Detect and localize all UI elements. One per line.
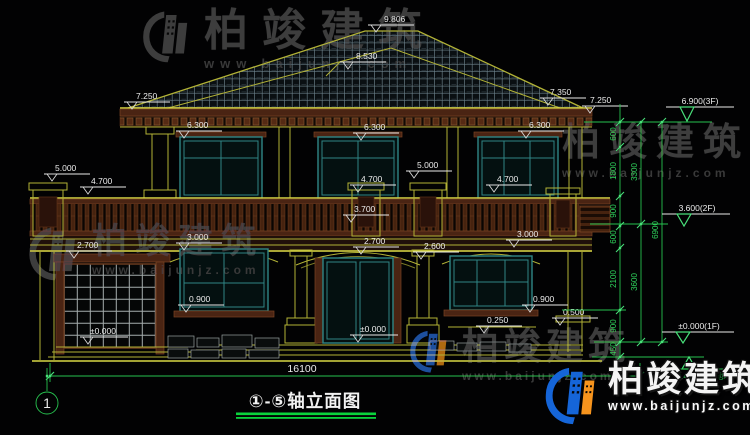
axis-bubble-1: 1 xyxy=(36,368,58,414)
axis-number: 1 xyxy=(43,395,51,411)
floor-level-flags: 6.900(3F) 3.600(2F) ±0.000(1F) -0.450(室外… xyxy=(662,96,742,381)
roof xyxy=(120,31,592,108)
window-2f-left xyxy=(176,132,266,199)
elev-label-balcony-floor: 3.700 xyxy=(354,204,376,214)
flag-3f: 6.900(3F) xyxy=(682,96,719,106)
elev-label-eave-right: 7.250 xyxy=(590,95,612,105)
dim-900a: 900 xyxy=(609,204,618,218)
elev-label-plinth-right: 0.500 xyxy=(563,307,585,317)
elev-label-arch-right: 2.600 xyxy=(424,241,446,251)
flag-1f: ±0.000(1F) xyxy=(678,321,720,331)
dim-2100: 2100 xyxy=(609,270,618,288)
dim-600b: 600 xyxy=(609,230,618,244)
elev-label-rail-mid: 4.700 xyxy=(361,174,383,184)
elev-label-rail-left: 4.700 xyxy=(91,176,113,186)
elev-label-winhead-right: 6.300 xyxy=(529,120,551,130)
elev-label-upper-hip: 8.530 xyxy=(356,51,378,61)
cad-viewport: 柏竣建筑 www.baijunjz.com 柏竣建筑 www.baijunjz.… xyxy=(0,0,750,435)
elev-label-sill-left: 0.900 xyxy=(189,294,211,304)
total-width-label: 16100 xyxy=(287,363,316,375)
window-2f-mid xyxy=(314,132,402,199)
elev-label-zero-left: ±0.000 xyxy=(90,326,116,336)
elevation-drawing: 9.806 8.530 7.250 7.350 7.250 6.300 6.30… xyxy=(0,0,750,435)
elev-label-sill-right: 0.900 xyxy=(533,294,555,304)
dim-6900: 6900 xyxy=(651,221,660,239)
elev-label-winhead-left: 6.300 xyxy=(187,120,209,130)
elev-label-arch-left: 2.700 xyxy=(77,240,99,250)
elev-label-pier-left: 5.000 xyxy=(55,163,77,173)
window-2f-right xyxy=(474,132,562,199)
elev-label-eave-left: 7.250 xyxy=(136,91,158,101)
balcony-railing xyxy=(30,198,610,252)
dim-3600: 3600 xyxy=(630,273,639,291)
elev-label-pier-right: 5.000 xyxy=(417,160,439,170)
elev-label-band-left: 3.000 xyxy=(187,232,209,242)
elev-label-zero-mid: ±0.000 xyxy=(360,324,386,334)
dim-450: 450 xyxy=(609,342,618,356)
flag-grade: -0.450(室外地坪) xyxy=(674,371,734,381)
chain-labels: 600 1800 900 600 2100 900 450 3300 3600 … xyxy=(609,127,660,356)
elev-label-ridge: 9.806 xyxy=(384,14,406,24)
drawing-title: ①-⑤轴立面图 xyxy=(236,391,376,419)
window-1f-left xyxy=(170,249,278,317)
elev-label-rail-right: 4.700 xyxy=(497,174,519,184)
bottom-dimension: 16100 xyxy=(46,363,644,382)
dim-3300: 3300 xyxy=(630,163,639,181)
elev-label-eave-right-upper: 7.350 xyxy=(550,87,572,97)
elev-label-band-right: 3.000 xyxy=(517,229,539,239)
title-text: ①-⑤轴立面图 xyxy=(249,391,361,411)
elev-label-arch-mid: 2.700 xyxy=(364,236,386,246)
flag-2f: 3.600(2F) xyxy=(679,203,716,213)
dim-1800: 1800 xyxy=(609,162,618,180)
dim-900b: 900 xyxy=(609,319,618,333)
elev-label-winhead-mid: 6.300 xyxy=(364,122,386,132)
elev-label-ledge-right: 0.250 xyxy=(487,315,509,325)
dim-600a: 600 xyxy=(609,127,618,141)
